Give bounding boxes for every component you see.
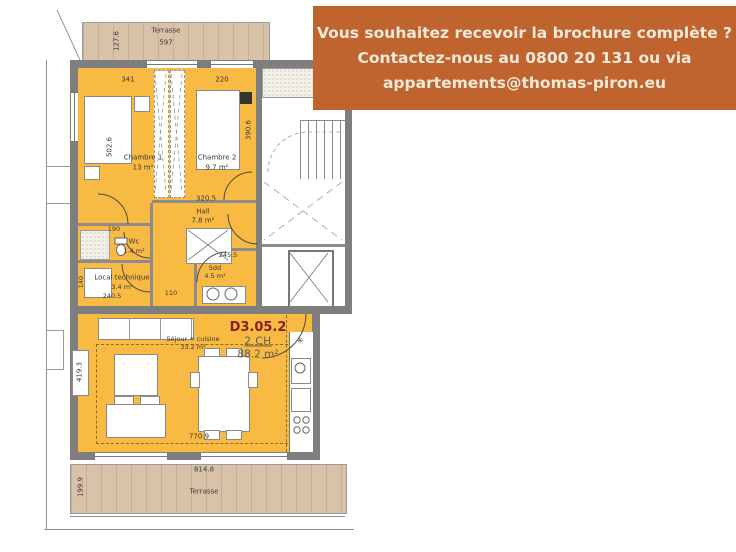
coffee-table: [114, 354, 158, 396]
unit-code: D3.05.2: [230, 320, 287, 336]
staircase-treads: [300, 120, 345, 179]
room-area-hall: 7.8 m²: [192, 217, 215, 226]
kitchen-fridge: [291, 388, 311, 412]
room-area-chambre1: 13 m²: [133, 164, 154, 173]
dim-190: 190: [108, 225, 120, 233]
wall-mid: [70, 306, 352, 314]
wardrobe-unit: [170, 70, 185, 198]
neighbour-door-outline: [46, 330, 64, 370]
window-living-left: [94, 453, 168, 460]
dim-597: 597: [159, 39, 172, 48]
dim-240-5: 240.5: [103, 292, 122, 300]
floorplan-page: ✳: [0, 0, 736, 552]
unit-total-area: 88.2 m²: [237, 348, 278, 361]
site-boundary-line: [46, 60, 47, 530]
dim-341: 341: [121, 76, 134, 85]
terrace-edge-line: [70, 516, 345, 517]
dim-390-6: 390.6: [245, 120, 254, 140]
shower-tiles: [80, 230, 110, 260]
dim-199-9: 199.9: [77, 477, 86, 497]
dining-table: [198, 356, 250, 432]
corner-diagonal: [57, 10, 80, 60]
banner-line-1: Vous souhaitez recevoir la brochure comp…: [317, 24, 732, 42]
side-table: [106, 404, 166, 438]
partition-wc-bottom: [78, 260, 150, 263]
room-area-sdd: 4.5 m²: [204, 272, 225, 280]
wardrobe-unit: [154, 70, 169, 198]
dining-chair: [226, 430, 242, 440]
room-area-local-technique: 3.4 m²: [111, 283, 132, 291]
terrace-top-label: Terrasse: [152, 27, 181, 36]
terrace-bottom-label: Terrasse: [190, 488, 219, 497]
room-label-chambre1: Chambre 1: [124, 154, 163, 163]
room-area-wc: 1.4 m²: [123, 247, 144, 255]
room-area-sejour: 33.2 m²: [180, 343, 205, 351]
dim-814-8: 814.8: [194, 466, 214, 475]
partition-landing-bottom: [262, 244, 345, 247]
hatched-wall-patch: [262, 68, 320, 98]
dim-770-9: 770.9: [189, 433, 209, 442]
room-label-local-technique: Local technique: [94, 274, 149, 283]
room-area-chambre2: 9.7 m²: [206, 164, 229, 173]
dim-127-6: 127.6: [113, 31, 122, 51]
window-chambre2: [210, 61, 254, 68]
table-chambre1: [134, 96, 150, 112]
brochure-banner: Vous souhaitez recevoir la brochure comp…: [313, 6, 736, 110]
dim-419-3: 419.3: [76, 362, 85, 382]
tv-unit-chambre2: [240, 92, 252, 104]
bathroom-counter: [202, 286, 246, 304]
dining-chair: [248, 372, 258, 388]
unit-bedroom-count: 2 CH: [244, 335, 271, 348]
room-label-chambre2: Chambre 2: [198, 154, 237, 163]
window-living-right: [200, 453, 288, 460]
dim-110: 110: [165, 289, 177, 297]
wall-core-divider: [256, 60, 262, 314]
wall-right-lower: [312, 314, 320, 460]
window-chambre1: [146, 61, 198, 68]
room-label-sdd: Sdd: [209, 264, 221, 272]
dim-320-5: 320.5: [196, 195, 216, 204]
ground-line: [44, 529, 354, 530]
kitchen-sink: [291, 358, 311, 384]
cooktop-star-icon: ✳: [296, 336, 304, 347]
nightstand-chambre1: [84, 166, 100, 180]
room-label-sejour: Séjour + cuisine: [166, 335, 219, 343]
room-label-hall: Hall: [196, 208, 209, 217]
dim-220: 220: [215, 76, 228, 85]
elevator-shaft: [288, 250, 334, 308]
dim-140: 140: [77, 276, 85, 288]
dim-502-6: 502.6: [106, 137, 115, 157]
banner-line-2: Contactez-nous au 0800 20 131 ou via: [358, 49, 692, 67]
dining-chair: [190, 372, 200, 388]
window-chambre1-side: [71, 92, 78, 142]
partition-wczone-right: [150, 203, 153, 306]
dim-245-5: 245.5: [219, 251, 238, 259]
banner-email: appartements@thomas-piron.eu: [383, 74, 666, 92]
room-label-wc: Wc: [129, 238, 140, 247]
